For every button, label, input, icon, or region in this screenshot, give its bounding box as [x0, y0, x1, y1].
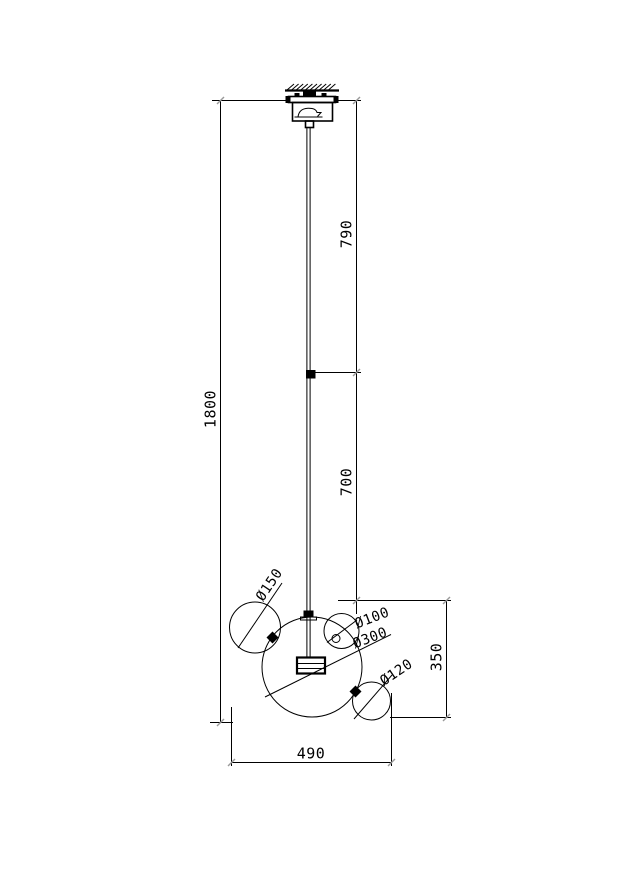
plate-end-left — [286, 96, 291, 103]
canopy-body — [293, 103, 333, 122]
dia-label-150: Ø150 — [253, 566, 286, 605]
dim-label-490: 490 — [297, 745, 326, 763]
ceiling-mount — [285, 84, 339, 128]
sphere-entry-fitting — [304, 611, 314, 618]
mounting-screw-right — [322, 93, 327, 97]
dim-label-700: 700 — [338, 468, 356, 497]
connector-diamond-right — [350, 686, 362, 698]
plate-end-right — [334, 96, 339, 103]
ceiling-hatch — [287, 84, 335, 90]
dimension-labels: 1800 790 700 350 490 — [202, 220, 446, 763]
dimension-lines — [210, 97, 451, 766]
canopy-stem — [306, 121, 314, 128]
dim-label-1800: 1800 — [202, 390, 220, 428]
dia-label-120: Ø120 — [377, 656, 416, 689]
technical-drawing-canvas: 1800 790 700 350 490 Ø150 Ø100 Ø300 Ø120 — [0, 0, 620, 877]
suspension-rod — [301, 128, 317, 659]
mounting-screw-left — [295, 93, 300, 97]
lamp-holder-box — [297, 658, 325, 674]
sphere-150 — [230, 602, 281, 653]
canopy-inner-detail — [295, 108, 323, 117]
pendant-lamp-dimension-drawing: 1800 790 700 350 490 Ø150 Ø100 Ø300 Ø120 — [0, 0, 620, 877]
rod-coupler — [306, 370, 316, 379]
mounting-plate — [289, 97, 336, 103]
dim-label-790: 790 — [338, 220, 356, 249]
sphere-300 — [262, 617, 362, 717]
dimension-tick-marks — [217, 97, 450, 766]
diameter-labels: Ø150 Ø100 Ø300 Ø120 — [253, 566, 416, 690]
dim-label-350: 350 — [428, 643, 446, 672]
glass-sphere-cluster — [230, 583, 393, 720]
mounting-plate-center-block — [303, 92, 316, 98]
